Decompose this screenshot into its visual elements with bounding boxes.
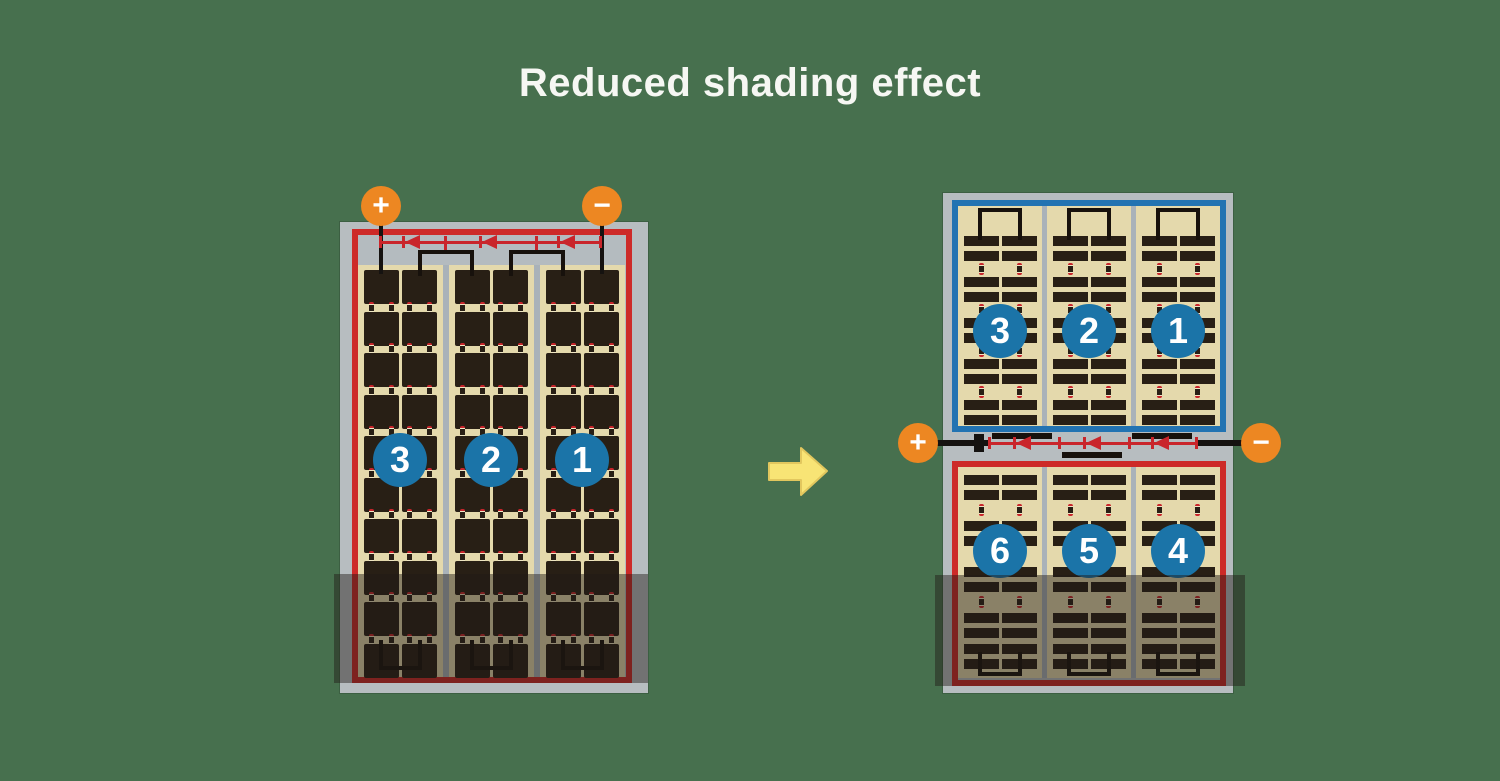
busbar-staple bbox=[1156, 208, 1160, 240]
cell-interconnect bbox=[1106, 504, 1111, 516]
solar-cell bbox=[1053, 277, 1088, 287]
solar-cell bbox=[402, 312, 437, 346]
solar-cell bbox=[455, 312, 490, 346]
solar-cell bbox=[1142, 359, 1177, 369]
busbar-staple bbox=[561, 250, 565, 276]
negative-terminal: − bbox=[582, 186, 622, 226]
solar-cell bbox=[493, 395, 528, 429]
solar-cell bbox=[584, 312, 619, 346]
bus-junction bbox=[1128, 437, 1131, 449]
bus-junction bbox=[988, 437, 991, 449]
solar-cell bbox=[1180, 251, 1215, 261]
busbar-staple bbox=[509, 250, 513, 276]
solar-cell bbox=[546, 353, 581, 387]
solar-cell bbox=[1091, 359, 1126, 369]
solar-cell bbox=[1142, 236, 1177, 246]
solar-cell bbox=[1053, 251, 1088, 261]
cell-interconnect bbox=[1157, 263, 1162, 275]
solar-cell bbox=[455, 519, 490, 553]
solar-cell bbox=[1180, 359, 1215, 369]
section-number-badge: 2 bbox=[1062, 304, 1116, 358]
solar-cell bbox=[964, 277, 999, 287]
solar-cell bbox=[546, 395, 581, 429]
solar-cell bbox=[1002, 475, 1037, 485]
solar-cell bbox=[964, 400, 999, 410]
solar-cell bbox=[1002, 251, 1037, 261]
solar-cell bbox=[1053, 475, 1088, 485]
solar-cell bbox=[1180, 475, 1215, 485]
transition-arrow-icon bbox=[766, 445, 830, 499]
busbar-segment bbox=[1062, 452, 1122, 458]
cell-interconnect bbox=[1195, 504, 1200, 516]
solar-cell bbox=[1091, 374, 1126, 384]
solar-cell bbox=[584, 395, 619, 429]
busbar-staple bbox=[1107, 208, 1111, 240]
diode-icon bbox=[1154, 436, 1169, 450]
solar-cell bbox=[402, 519, 437, 553]
bus-junction bbox=[1195, 437, 1198, 449]
negative-terminal: − bbox=[1241, 423, 1281, 463]
cell-interconnect bbox=[1068, 386, 1073, 398]
solar-cell bbox=[1053, 292, 1088, 302]
solar-cell bbox=[1002, 400, 1037, 410]
solar-cell bbox=[493, 353, 528, 387]
solar-cell bbox=[964, 490, 999, 500]
solar-cell bbox=[964, 475, 999, 485]
solar-cell bbox=[964, 374, 999, 384]
solar-cell bbox=[364, 395, 399, 429]
cell-interconnect bbox=[1017, 504, 1022, 516]
cell-interconnect bbox=[1195, 386, 1200, 398]
solar-cell bbox=[584, 353, 619, 387]
busbar-staple bbox=[1067, 208, 1111, 212]
shade-overlay bbox=[935, 575, 1245, 686]
solar-cell bbox=[1002, 292, 1037, 302]
solar-cell bbox=[1091, 415, 1126, 425]
page-title: Reduced shading effect bbox=[0, 60, 1500, 106]
solar-cell bbox=[1002, 490, 1037, 500]
solar-cell bbox=[584, 519, 619, 553]
cell-interconnect bbox=[1106, 263, 1111, 275]
solar-cell bbox=[1180, 374, 1215, 384]
cell-interconnect bbox=[979, 386, 984, 398]
solar-cell bbox=[1180, 400, 1215, 410]
solar-cell bbox=[1142, 400, 1177, 410]
solar-cell bbox=[1180, 292, 1215, 302]
section-number-badge: 5 bbox=[1062, 524, 1116, 578]
solar-cell bbox=[1053, 236, 1088, 246]
solar-cell bbox=[493, 519, 528, 553]
diode-icon bbox=[1016, 436, 1031, 450]
solar-cell bbox=[1091, 475, 1126, 485]
diagram-canvas: Reduced shading effect 321+−321654+− bbox=[0, 0, 1500, 781]
cell-interconnect bbox=[1017, 263, 1022, 275]
diode-icon bbox=[1086, 436, 1101, 450]
solar-cell bbox=[1142, 251, 1177, 261]
solar-cell bbox=[546, 519, 581, 553]
solar-cell bbox=[1053, 400, 1088, 410]
bus-junction bbox=[1058, 437, 1061, 449]
solar-cell bbox=[402, 395, 437, 429]
solar-cell bbox=[1002, 415, 1037, 425]
busbar-staple bbox=[1196, 208, 1200, 240]
busbar-staple bbox=[1156, 208, 1200, 212]
section-number-badge: 1 bbox=[555, 433, 609, 487]
solar-cell bbox=[1053, 490, 1088, 500]
solar-cell bbox=[964, 292, 999, 302]
solar-cell bbox=[1180, 415, 1215, 425]
busbar-segment bbox=[974, 434, 984, 452]
solar-cell bbox=[364, 519, 399, 553]
solar-cell bbox=[1142, 277, 1177, 287]
solar-cell bbox=[364, 270, 399, 304]
solar-cell bbox=[1002, 359, 1037, 369]
diode-icon bbox=[405, 235, 420, 249]
positive-terminal: + bbox=[898, 423, 938, 463]
solar-cell bbox=[1180, 277, 1215, 287]
solar-cell bbox=[1091, 400, 1126, 410]
busbar-staple bbox=[509, 250, 565, 254]
section-number-badge: 3 bbox=[373, 433, 427, 487]
busbar-staple bbox=[418, 250, 474, 254]
solar-cell bbox=[1091, 277, 1126, 287]
busbar-staple bbox=[1067, 208, 1071, 240]
solar-cell bbox=[1053, 374, 1088, 384]
terminal-wire bbox=[1198, 440, 1244, 446]
solar-cell bbox=[964, 415, 999, 425]
section-number-badge: 6 bbox=[973, 524, 1027, 578]
solar-cell bbox=[1091, 251, 1126, 261]
cell-interconnect bbox=[1017, 386, 1022, 398]
solar-cell bbox=[364, 312, 399, 346]
solar-cell bbox=[402, 353, 437, 387]
solar-cell bbox=[364, 353, 399, 387]
solar-cell bbox=[964, 359, 999, 369]
cell-interconnect bbox=[1068, 263, 1073, 275]
shade-overlay bbox=[334, 574, 648, 683]
solar-cell bbox=[1142, 475, 1177, 485]
diode-icon bbox=[482, 235, 497, 249]
busbar-staple bbox=[978, 208, 982, 240]
solar-cell bbox=[584, 270, 619, 304]
cell-interconnect bbox=[1157, 504, 1162, 516]
diode-icon bbox=[560, 235, 575, 249]
solar-cell bbox=[493, 312, 528, 346]
solar-cell bbox=[1180, 490, 1215, 500]
solar-cell bbox=[964, 251, 999, 261]
cell-interconnect bbox=[1195, 263, 1200, 275]
solar-cell bbox=[1142, 415, 1177, 425]
solar-cell bbox=[1091, 292, 1126, 302]
section-number-badge: 1 bbox=[1151, 304, 1205, 358]
busbar-staple bbox=[978, 208, 1022, 212]
solar-cell bbox=[1053, 359, 1088, 369]
busbar-staple bbox=[1018, 208, 1022, 240]
solar-cell bbox=[1142, 374, 1177, 384]
solar-cell bbox=[546, 312, 581, 346]
cell-interconnect bbox=[979, 504, 984, 516]
solar-cell bbox=[455, 353, 490, 387]
cell-interconnect bbox=[1157, 386, 1162, 398]
bus-junction bbox=[379, 236, 382, 248]
cell-interconnect bbox=[1068, 504, 1073, 516]
solar-cell bbox=[1091, 490, 1126, 500]
solar-cell bbox=[455, 395, 490, 429]
solar-cell bbox=[964, 236, 999, 246]
section-number-badge: 3 bbox=[973, 304, 1027, 358]
cell-interconnect bbox=[979, 263, 984, 275]
solar-cell bbox=[1142, 292, 1177, 302]
positive-terminal: + bbox=[361, 186, 401, 226]
solar-cell bbox=[1002, 277, 1037, 287]
solar-cell bbox=[1053, 415, 1088, 425]
section-number-badge: 2 bbox=[464, 433, 518, 487]
solar-cell bbox=[1142, 490, 1177, 500]
busbar-staple bbox=[418, 250, 422, 276]
busbar-staple bbox=[470, 250, 474, 276]
cell-interconnect bbox=[1106, 386, 1111, 398]
solar-cell bbox=[1002, 374, 1037, 384]
bus-junction bbox=[599, 236, 602, 248]
section-number-badge: 4 bbox=[1151, 524, 1205, 578]
